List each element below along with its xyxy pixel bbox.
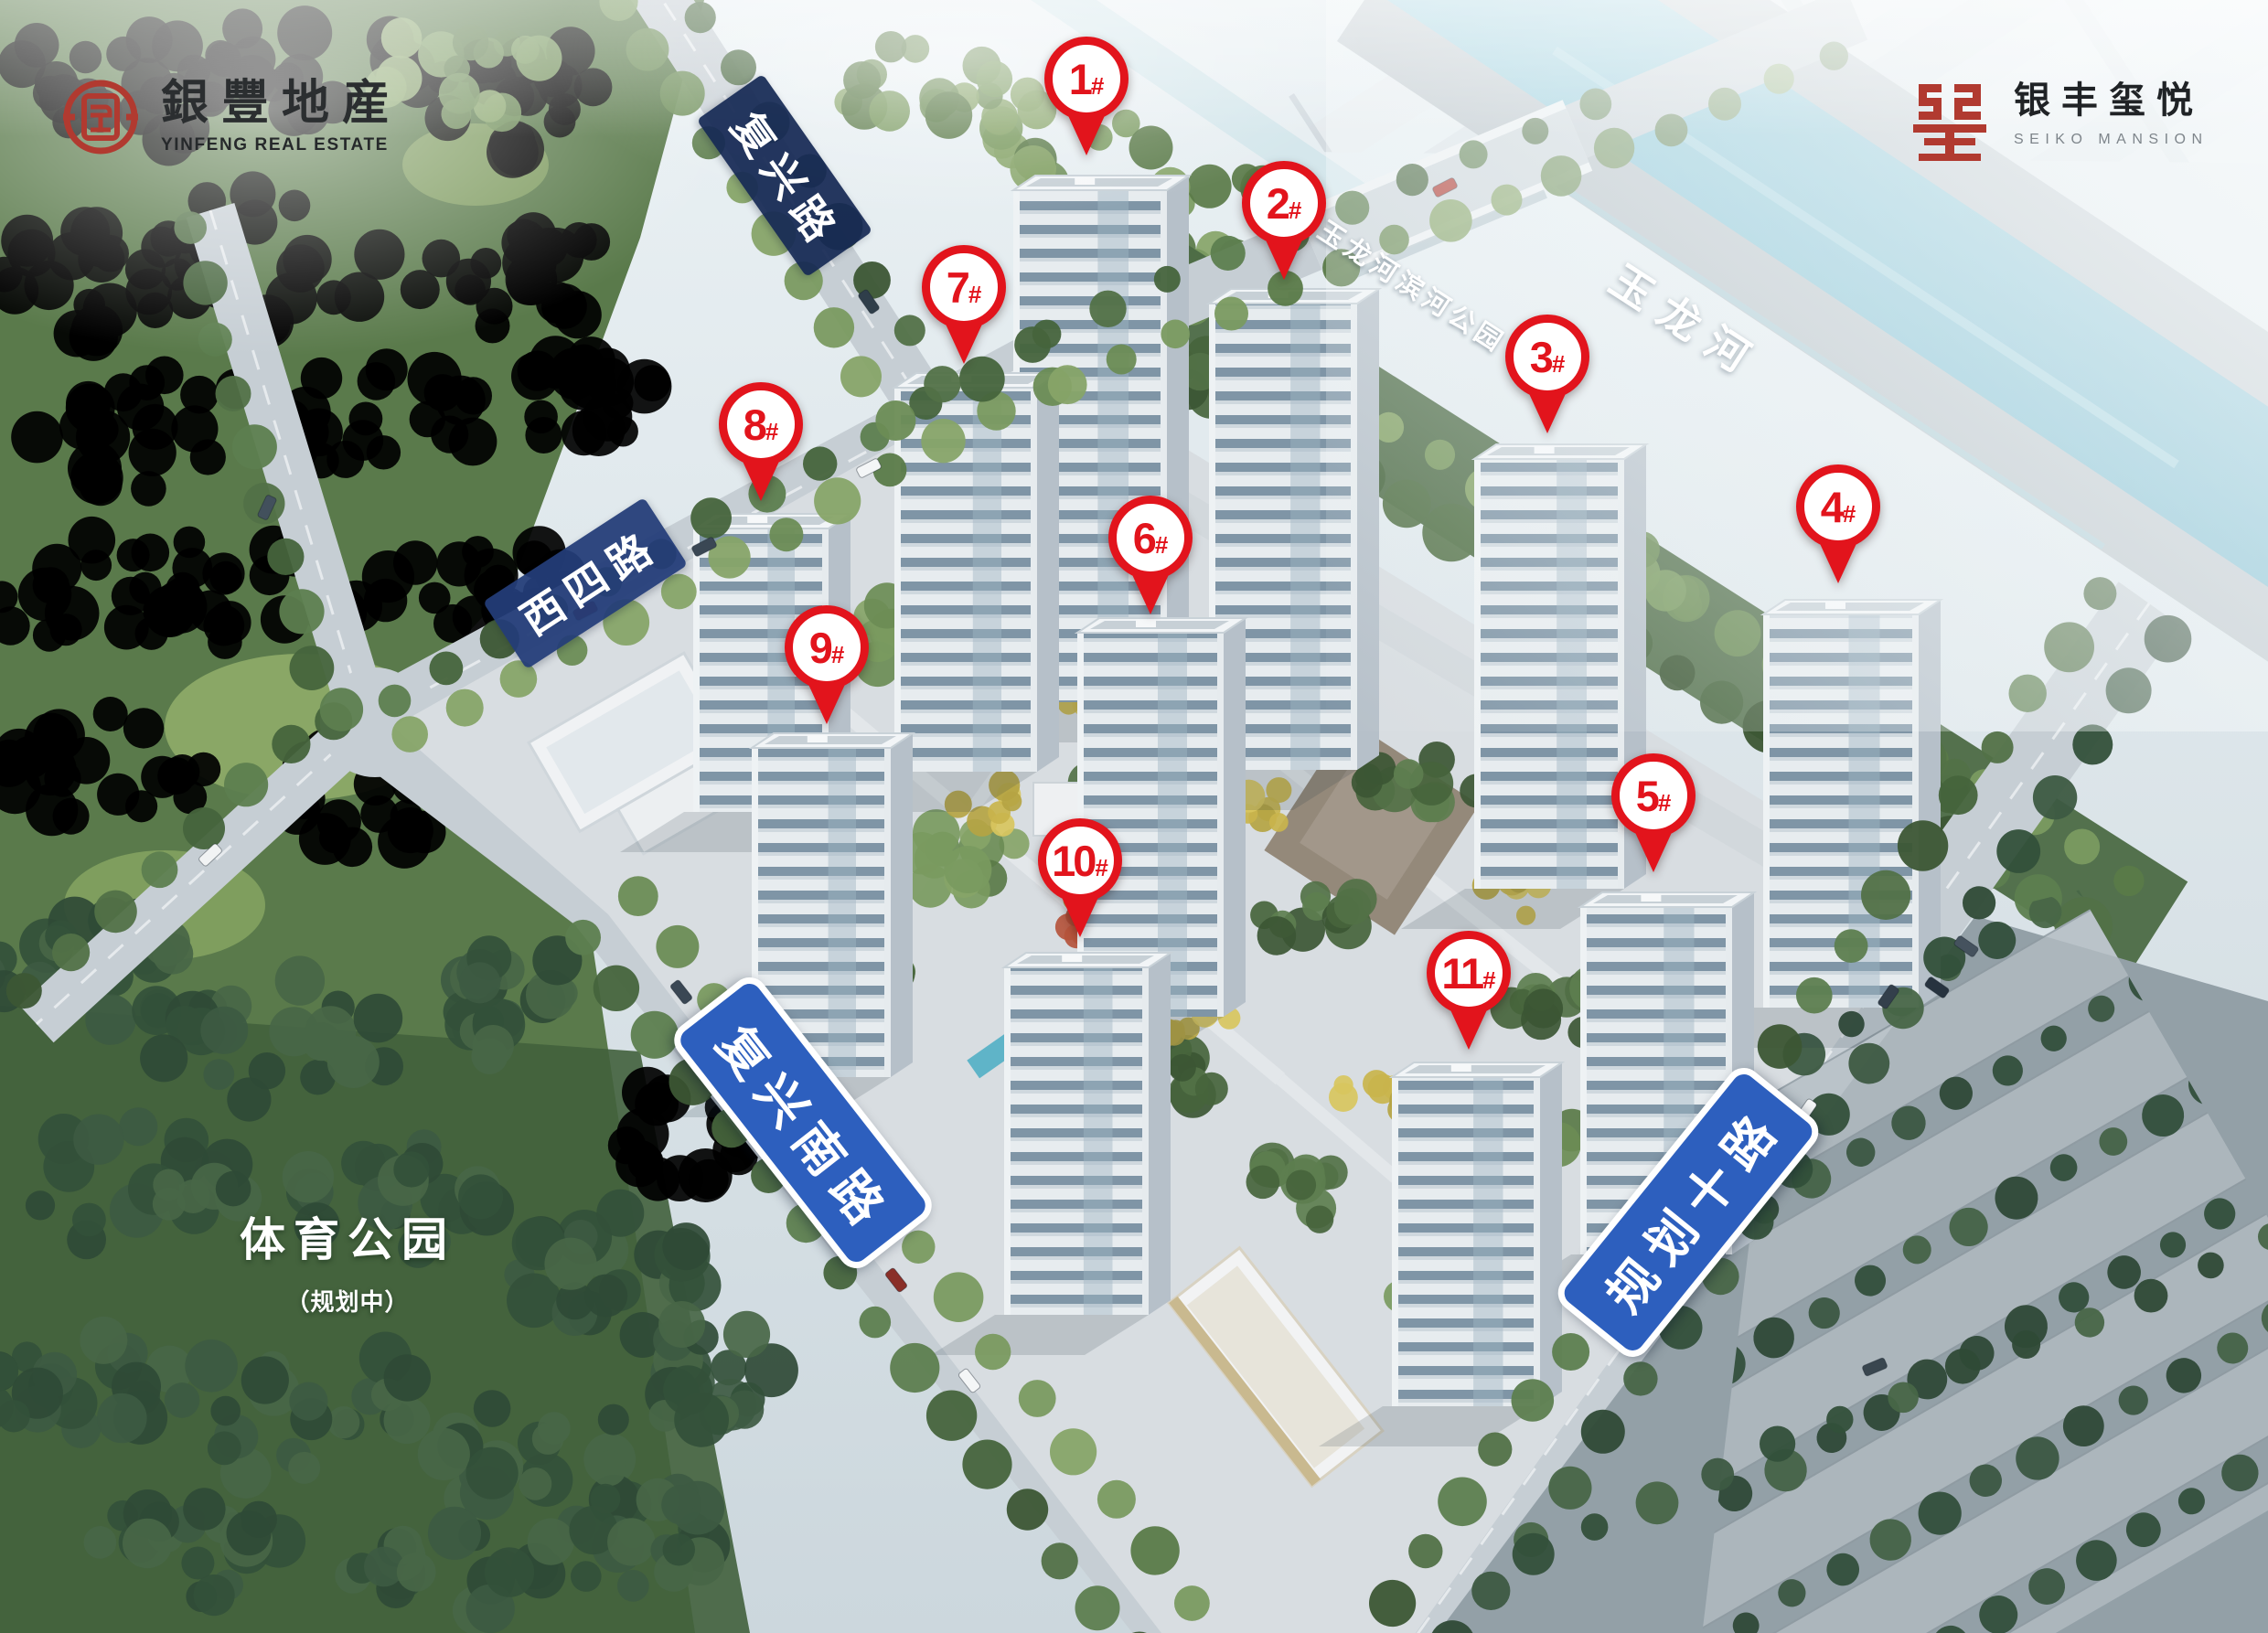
developer-name-en: YINFENG REAL ESTATE (161, 135, 402, 155)
sports-park-name: 体育公园 (229, 1203, 466, 1269)
sports-park-label: 体育公园 （规划中） (229, 1203, 466, 1318)
marker-label: 2 (1267, 182, 1288, 225)
building-marker-9[interactable]: 9# (785, 605, 869, 724)
building-marker-11[interactable]: 11# (1427, 931, 1511, 1050)
marker-circle: 2# (1242, 161, 1326, 245)
marker-circle: 4# (1796, 464, 1880, 549)
marker-circle: 7# (922, 245, 1006, 329)
marker-suffix: # (1482, 968, 1495, 992)
marker-circle: 9# (785, 605, 869, 689)
marker-circle: 6# (1108, 496, 1193, 580)
building-marker-1[interactable]: 1# (1044, 37, 1129, 155)
marker-label: 9 (809, 626, 830, 669)
building-marker-8[interactable]: 8# (719, 382, 803, 501)
project-name-cn: 银丰玺悦 (2014, 80, 2209, 121)
building-marker-5[interactable]: 5# (1611, 753, 1696, 872)
marker-suffix: # (968, 283, 981, 306)
marker-suffix: # (765, 420, 778, 443)
marker-circle: 11# (1427, 931, 1511, 1015)
marker-circle: 5# (1611, 753, 1696, 838)
masterplan-aerial-page: 銀豐地産 YINFENG REAL ESTATE 银丰玺悦 SEIKO MANS… (0, 0, 2268, 1633)
marker-label: 6 (1133, 517, 1154, 560)
marker-circle: 10# (1038, 818, 1122, 902)
project-logo: 银丰玺悦 SEIKO MANSION (1910, 80, 2209, 165)
marker-label: 8 (744, 403, 765, 446)
building-marker-3[interactable]: 3# (1505, 315, 1589, 433)
building-marker-6[interactable]: 6# (1108, 496, 1193, 614)
marker-suffix: # (1091, 74, 1104, 98)
developer-logo: 銀豐地産 YINFENG REAL ESTATE (60, 77, 402, 157)
marker-label: 3 (1530, 336, 1551, 379)
marker-circle: 3# (1505, 315, 1589, 399)
building-marker-7[interactable]: 7# (922, 245, 1006, 364)
developer-name-cn: 銀豐地産 (161, 79, 402, 129)
yinfeng-seal-icon (60, 77, 141, 157)
aerial-rendering (0, 0, 2268, 1633)
marker-suffix: # (1552, 352, 1565, 376)
marker-suffix: # (1843, 502, 1856, 526)
project-name-en: SEIKO MANSION (2014, 132, 2209, 148)
seiko-mansion-monogram-icon (1910, 80, 1990, 165)
building-marker-4[interactable]: 4# (1796, 464, 1880, 583)
marker-suffix: # (831, 643, 844, 667)
marker-label: 11 (1441, 952, 1482, 995)
marker-label: 10 (1052, 839, 1094, 882)
marker-label: 4 (1821, 486, 1842, 528)
marker-label: 5 (1636, 774, 1657, 817)
marker-suffix: # (1289, 198, 1301, 222)
marker-suffix: # (1095, 856, 1107, 880)
building-marker-2[interactable]: 2# (1242, 161, 1326, 280)
building-marker-10[interactable]: 10# (1038, 818, 1122, 937)
marker-suffix: # (1155, 533, 1168, 557)
marker-label: 7 (947, 266, 968, 309)
sports-park-status: （规划中） (229, 1284, 466, 1318)
marker-circle: 8# (719, 382, 803, 466)
marker-circle: 1# (1044, 37, 1129, 121)
marker-suffix: # (1658, 791, 1671, 815)
marker-label: 1 (1069, 58, 1090, 101)
